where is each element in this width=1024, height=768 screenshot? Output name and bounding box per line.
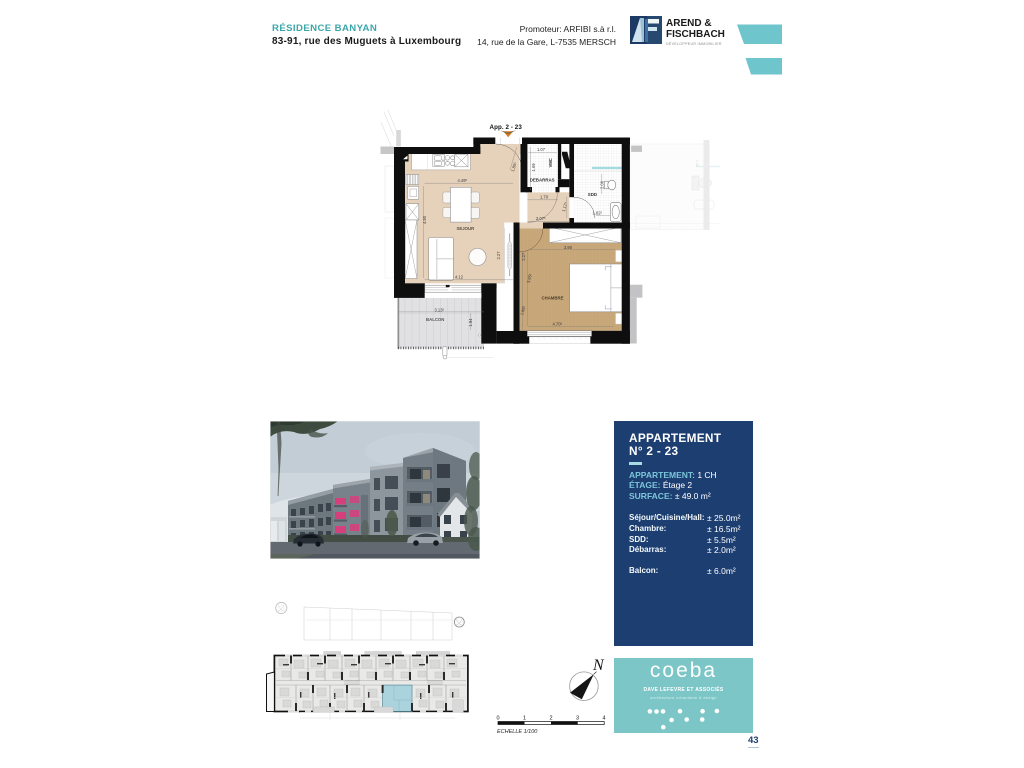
svg-text:1.70: 1.70 — [540, 194, 549, 199]
svg-text:2.06: 2.06 — [599, 180, 604, 189]
svg-text:1.43: 1.43 — [695, 160, 699, 167]
svg-text:DEBARRAS: DEBARRAS — [530, 177, 555, 182]
svg-text:CHAMBRE: CHAMBRE — [542, 296, 564, 301]
svg-text:2.27: 2.27 — [496, 251, 501, 260]
svg-text:App. 2 - 23: App. 2 - 23 — [490, 124, 523, 131]
svg-text:VMC: VMC — [548, 158, 553, 167]
svg-text:4: 4 — [603, 716, 606, 722]
svg-text:1: 1 — [523, 716, 526, 722]
svg-text:2.27: 2.27 — [521, 252, 526, 261]
svg-text:0: 0 — [497, 716, 500, 722]
svg-text:1.94: 1.94 — [468, 318, 473, 327]
svg-text:3.90: 3.90 — [564, 245, 573, 250]
svg-text:SDD: SDD — [588, 192, 597, 197]
svg-text:SEJOUR: SEJOUR — [457, 226, 476, 231]
svg-text:BALCON: BALCON — [426, 317, 444, 322]
svg-text:4.12: 4.12 — [455, 274, 464, 279]
svg-text:3: 3 — [576, 716, 579, 722]
svg-text:1.69: 1.69 — [531, 163, 536, 172]
svg-text:ECHELLE 1/100: ECHELLE 1/100 — [497, 729, 538, 735]
svg-text:N: N — [592, 657, 605, 674]
svg-text:4.90: 4.90 — [422, 215, 427, 224]
svg-text:1.07: 1.07 — [537, 147, 546, 152]
svg-text:2: 2 — [550, 716, 553, 722]
